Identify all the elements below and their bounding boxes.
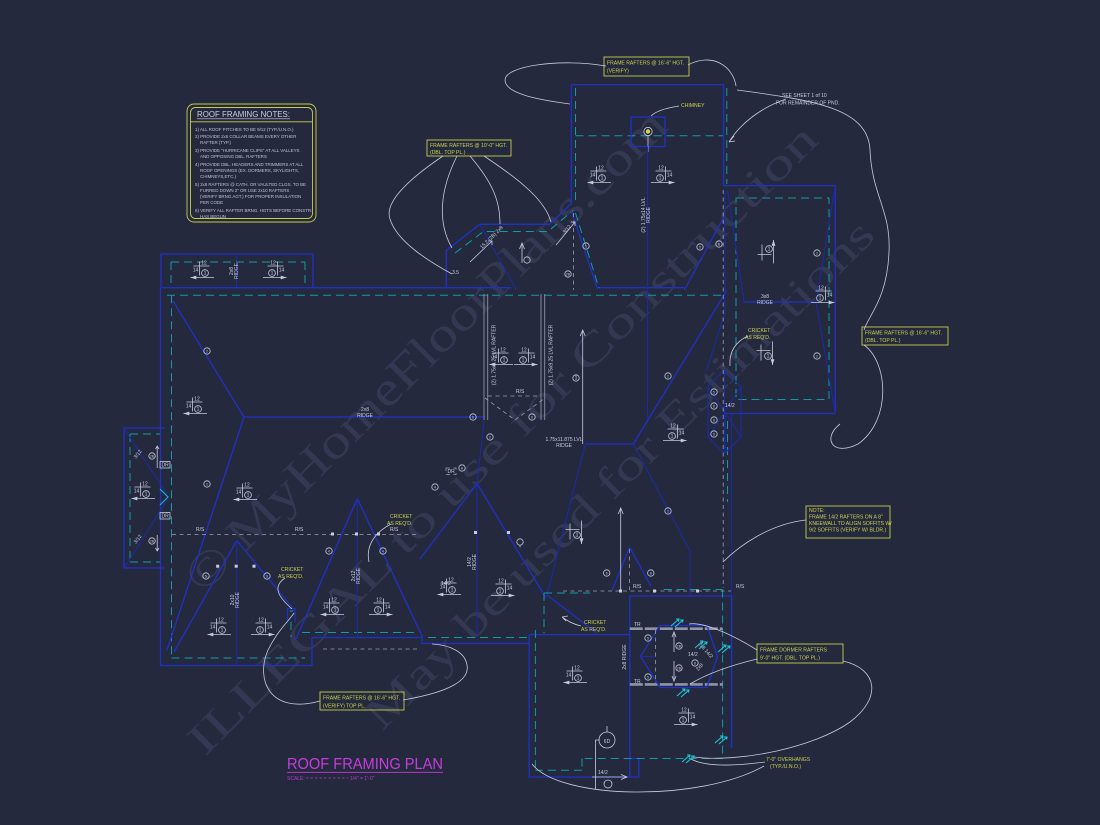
svg-text:4: 4 xyxy=(434,485,436,489)
svg-text:2: 2 xyxy=(816,251,818,255)
svg-text:1) ALL ROOF PITCHES TO BE 9/1: 1) ALL ROOF PITCHES TO BE 9/12 (TYP./U.N… xyxy=(195,127,294,132)
svg-text:AS REQ'D.: AS REQ'D. xyxy=(581,627,606,633)
svg-text:6: 6 xyxy=(713,418,715,422)
svg-text:9/2 SOFFITS (VERIFY W/ BLDR.): 9/2 SOFFITS (VERIFY W/ BLDR.) xyxy=(809,528,886,534)
svg-text:CRICKET: CRICKET xyxy=(390,514,412,520)
svg-text:R/S: R/S xyxy=(516,389,525,395)
svg-text:AS REQ'D.: AS REQ'D. xyxy=(745,335,770,341)
svg-text:FURRED DOWN 2" OR USE 2x10 RAF: FURRED DOWN 2" OR USE 2x10 RAFTERS xyxy=(200,188,289,193)
svg-text:KNEEWALL TO ALIGN SOFFITS W/: KNEEWALL TO ALIGN SOFFITS W/ xyxy=(809,521,892,527)
svg-text:2B: 2B xyxy=(566,272,571,276)
svg-text:4: 4 xyxy=(382,549,384,553)
svg-text:6: 6 xyxy=(713,404,715,408)
svg-text:5: 5 xyxy=(699,245,701,249)
svg-text:2B: 2B xyxy=(677,644,682,648)
svg-text:2: 2 xyxy=(816,354,818,358)
svg-text:CRICKET: CRICKET xyxy=(584,620,606,626)
svg-text:TR: TR xyxy=(634,622,641,628)
svg-text:CHIMNEYS,ETC.): CHIMNEYS,ETC.) xyxy=(200,174,236,179)
svg-text:SCALE:: SCALE: xyxy=(287,776,305,782)
svg-text:ROOF FRAMING NOTES:: ROOF FRAMING NOTES: xyxy=(197,110,290,119)
svg-text:5: 5 xyxy=(713,390,715,394)
svg-text:(DBL. TOP PL.): (DBL. TOP PL.) xyxy=(865,338,901,344)
svg-text:5: 5 xyxy=(205,574,207,578)
svg-text:DR: DR xyxy=(162,514,170,520)
svg-text:14/2: 14/2 xyxy=(688,652,698,658)
svg-text:3.5: 3.5 xyxy=(452,270,459,276)
svg-text:FRAME DORMER RAFTERS: FRAME DORMER RAFTERS xyxy=(760,648,828,654)
svg-text:HAS BEGUN: HAS BEGUN xyxy=(200,214,226,219)
svg-text:R/S: R/S xyxy=(633,584,642,590)
svg-text:RIDGE: RIDGE xyxy=(556,443,573,449)
svg-text:14/2: 14/2 xyxy=(598,770,608,776)
svg-text:DR: DR xyxy=(448,469,456,475)
svg-text:RIDGE: RIDGE xyxy=(235,591,241,608)
svg-text:2B: 2B xyxy=(150,539,155,543)
svg-text:NOTE:: NOTE: xyxy=(809,508,825,514)
svg-text:(VERIFY BRNG.AGT.) FOR PROPER: (VERIFY BRNG.AGT.) FOR PROPER INSULATION xyxy=(200,194,301,199)
svg-text:1/4" = 1'-0": 1/4" = 1'-0" xyxy=(350,776,375,782)
svg-text:DR: DR xyxy=(162,463,170,469)
svg-text:(2) 1.75x9.25 LVL RAFTER: (2) 1.75x9.25 LVL RAFTER xyxy=(549,324,555,385)
svg-text:(VERIFY): (VERIFY) xyxy=(607,69,629,75)
svg-text:3: 3 xyxy=(266,574,268,578)
svg-text:FRAME RAFTERS @ 16'-6" HGT.: FRAME RAFTERS @ 16'-6" HGT. xyxy=(323,696,400,702)
svg-text:(TYP./U.N.O.): (TYP./U.N.O.) xyxy=(770,764,801,770)
svg-text:5: 5 xyxy=(585,244,587,248)
svg-text:5) 2x8 RAFTERS @ CATH. OR VAUL: 5) 2x8 RAFTERS @ CATH. OR VAULTED CLGS. … xyxy=(195,182,306,187)
svg-text:SEE SHEET 1 of 10: SEE SHEET 1 of 10 xyxy=(782,93,827,99)
svg-text:5: 5 xyxy=(647,675,649,679)
svg-text:CRICKET: CRICKET xyxy=(281,567,303,573)
svg-text:6: 6 xyxy=(531,415,533,419)
svg-text:ROOF FRAMING PLAN: ROOF FRAMING PLAN xyxy=(287,756,443,773)
svg-text:FRAME RAFTERS @ 16'-6" HGT.: FRAME RAFTERS @ 16'-6" HGT. xyxy=(607,61,684,67)
svg-text:ROOF OPENINGS (EX. DORMERS, SK: ROOF OPENINGS (EX. DORMERS, SKYLIGHTS, xyxy=(200,168,299,173)
svg-text:6: 6 xyxy=(472,415,474,419)
svg-text:2B: 2B xyxy=(150,454,155,458)
svg-text:R/S: R/S xyxy=(390,527,399,533)
svg-text:RAFTER (TYP.): RAFTER (TYP.) xyxy=(200,140,231,145)
svg-text:5: 5 xyxy=(647,636,649,640)
svg-text:4) PROVIDE DBL. HEADERS AND TR: 4) PROVIDE DBL. HEADERS AND TRIMMERS AT … xyxy=(195,162,304,167)
svg-text:6D: 6D xyxy=(604,739,611,745)
svg-text:2: 2 xyxy=(667,509,669,513)
svg-text:R/S: R/S xyxy=(295,527,304,533)
svg-text:PER CODE: PER CODE xyxy=(200,200,223,205)
svg-text:FRAME 14/2 RAFTERS ON A 8": FRAME 14/2 RAFTERS ON A 8" xyxy=(809,515,883,521)
svg-text:RIDGE: RIDGE xyxy=(234,262,240,279)
svg-text:3) PROVIDE "HURRICANE CLIPS" A: 3) PROVIDE "HURRICANE CLIPS" AT ALL VALL… xyxy=(195,148,300,153)
svg-text:9'-0" HGT. (DBL. TOP PL.): 9'-0" HGT. (DBL. TOP PL.) xyxy=(760,656,820,662)
svg-text:RIDGE: RIDGE xyxy=(357,413,374,419)
svg-text:AND OPPOSING DBL. RAFTERS: AND OPPOSING DBL. RAFTERS xyxy=(200,154,267,159)
svg-text:14/2: 14/2 xyxy=(725,403,735,409)
svg-text:2x8 RIDGE: 2x8 RIDGE xyxy=(622,644,628,670)
svg-text:14/2: 14/2 xyxy=(441,581,451,587)
svg-text:2: 2 xyxy=(206,482,208,486)
svg-text:CHIMNEY: CHIMNEY xyxy=(681,103,705,109)
svg-text:FRAME RAFTERS @ 10'-0" HGT.: FRAME RAFTERS @ 10'-0" HGT. xyxy=(430,143,507,149)
svg-text:4: 4 xyxy=(519,544,521,548)
svg-text:RIDGE: RIDGE xyxy=(356,567,362,584)
svg-text:7'-0" OVERHANGS: 7'-0" OVERHANGS xyxy=(766,757,811,763)
svg-text:2: 2 xyxy=(206,349,208,353)
svg-text:2) PROVIDE 2x6 COLLAR BEAMS EV: 2) PROVIDE 2x6 COLLAR BEAMS EVERY OTHER xyxy=(195,134,297,139)
svg-text:RIDGE: RIDGE xyxy=(646,206,652,223)
svg-text:5: 5 xyxy=(713,432,715,436)
svg-text:R/S: R/S xyxy=(736,584,745,590)
svg-text:1: 1 xyxy=(575,376,578,382)
svg-text:2: 2 xyxy=(667,374,669,378)
svg-text:FRAME RAFTERS @ 16'-6" HGT.: FRAME RAFTERS @ 16'-6" HGT. xyxy=(865,331,942,337)
svg-text:AS REQ'D.: AS REQ'D. xyxy=(278,574,303,580)
svg-text:2B: 2B xyxy=(677,666,682,670)
svg-text:RIDGE: RIDGE xyxy=(757,300,774,306)
svg-text:6) VERIFY ALL RAFTER BRNG. HGT: 6) VERIFY ALL RAFTER BRNG. HGTS BEFORE C… xyxy=(195,208,312,213)
svg-text:CRICKET: CRICKET xyxy=(748,328,770,334)
svg-text:6: 6 xyxy=(606,571,608,575)
svg-text:R/S: R/S xyxy=(196,527,205,533)
svg-text:(VERIFY) TOP PL.: (VERIFY) TOP PL. xyxy=(323,704,365,710)
svg-text:8: 8 xyxy=(694,661,696,665)
svg-text:8: 8 xyxy=(650,571,652,575)
svg-text:2: 2 xyxy=(489,435,491,439)
svg-text:(DBL. TOP PL.): (DBL. TOP PL.) xyxy=(430,150,466,156)
svg-text:TR: TR xyxy=(634,679,641,685)
svg-text:RIDGE: RIDGE xyxy=(472,553,478,570)
svg-text:4: 4 xyxy=(328,549,330,553)
